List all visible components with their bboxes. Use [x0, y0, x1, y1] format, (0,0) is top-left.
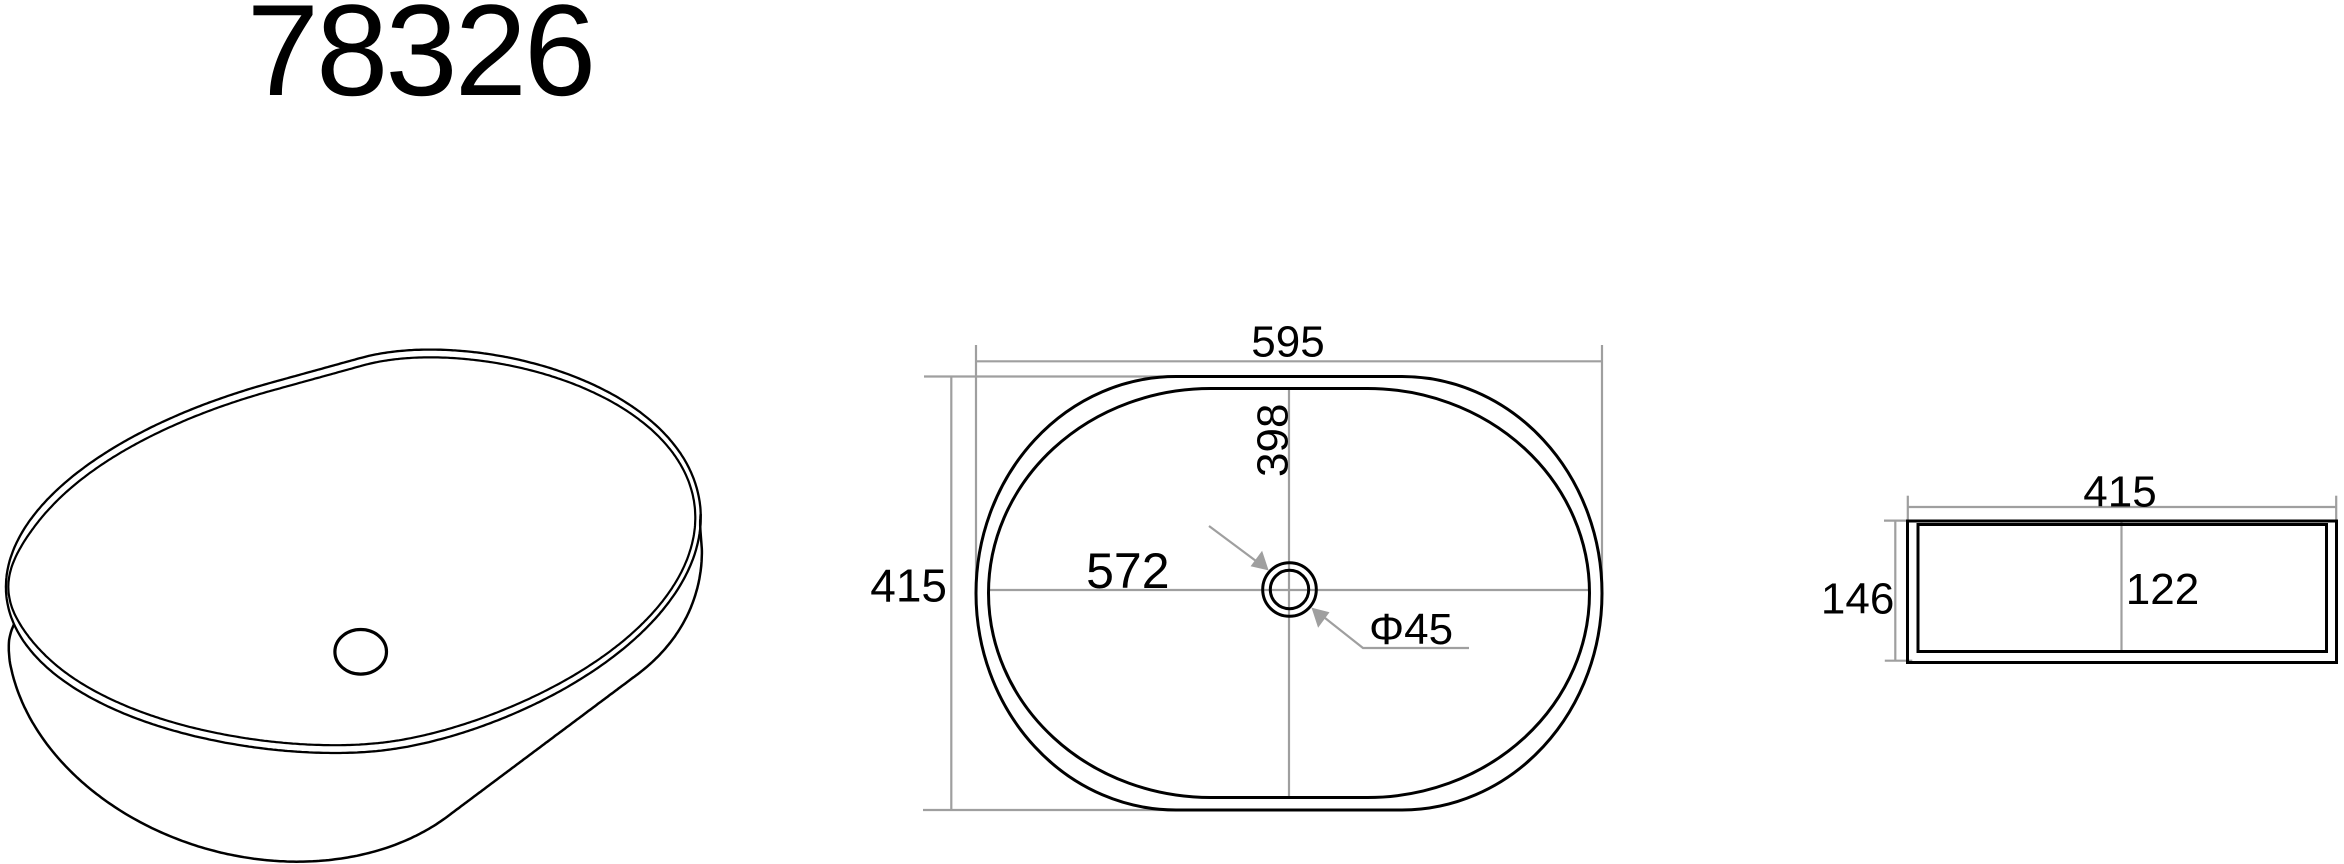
- svg-text:78326: 78326: [247, 0, 594, 123]
- svg-text:398: 398: [1249, 404, 1298, 477]
- svg-text:122: 122: [2126, 565, 2199, 614]
- svg-text:415: 415: [2083, 468, 2156, 517]
- svg-text:572: 572: [1086, 543, 1169, 599]
- svg-text:595: 595: [1251, 317, 1324, 366]
- svg-text:415: 415: [870, 560, 947, 612]
- svg-text:146: 146: [1821, 575, 1894, 624]
- svg-text:Φ45: Φ45: [1369, 605, 1453, 654]
